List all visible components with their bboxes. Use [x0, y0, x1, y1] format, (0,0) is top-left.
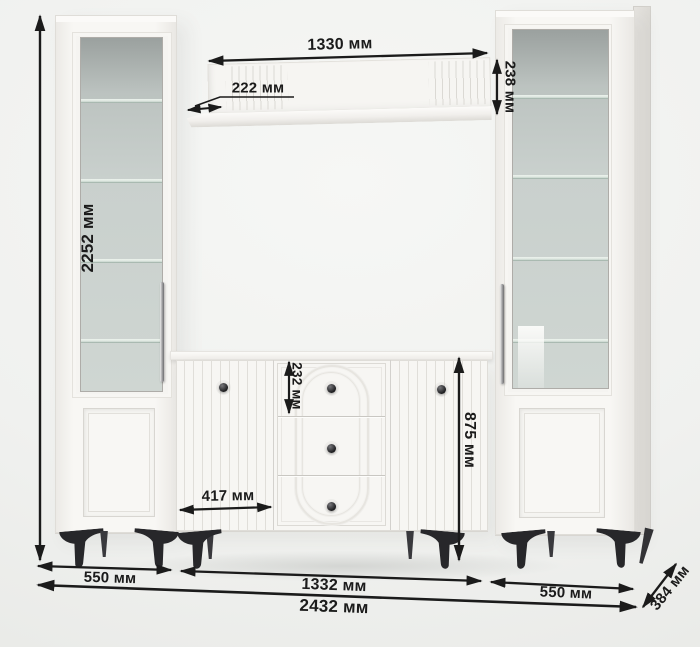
drawer-divider [278, 416, 385, 417]
right-cabinet-side-panel [633, 6, 651, 535]
cabinet-leg [592, 528, 641, 572]
dim-label-stand-height: 875 мм [460, 412, 478, 468]
right-door-handle [500, 284, 504, 384]
shelf-grooves-right [428, 60, 487, 105]
dim-label-stand-door-width: 417 мм [202, 487, 255, 505]
dim-label-total-height: 2252 мм [78, 203, 98, 272]
cabinet-leg [500, 529, 549, 573]
left-display-cabinet [55, 15, 177, 534]
door-knob [219, 383, 228, 392]
stand-leg [176, 529, 225, 573]
drawer-divider [278, 475, 385, 476]
door-knob [437, 385, 446, 394]
tv-stand-top [170, 351, 493, 360]
drawer-knob [327, 384, 336, 393]
dim-label-top-drawer-height: 232 мм [290, 362, 305, 409]
tv-stand [176, 360, 488, 532]
dim-label-shelf-depth: 222 мм [232, 80, 285, 97]
dim-label-stand-width: 1332 мм [301, 576, 367, 596]
dim-label-total-width: 2432 мм [299, 596, 369, 618]
glass-shelf [81, 99, 162, 103]
dim-label-right-cabinet-width: 550 мм [539, 583, 592, 602]
lower-door-panel [83, 408, 155, 517]
cabinet-top-edge [56, 16, 176, 22]
furniture-diagram: 2252 мм 1330 мм 222 мм 238 мм 232 мм 875… [0, 0, 700, 647]
glass-shelf [513, 175, 608, 179]
cabinet-leg [130, 528, 179, 572]
glass-shelf [513, 257, 608, 261]
glass-panel [512, 29, 609, 389]
drawer-knob [327, 444, 336, 453]
glass-shelf [513, 95, 608, 99]
glass-reflection [518, 326, 544, 388]
glass-shelf [81, 179, 162, 183]
drawer-knob [327, 502, 336, 511]
left-door-handle [160, 282, 164, 382]
right-glass-door [504, 24, 612, 396]
glass-shelf [81, 339, 162, 343]
stand-leg [416, 529, 465, 573]
dim-label-left-cabinet-width: 550 мм [83, 569, 136, 587]
dim-label-shelf-width: 1330 мм [307, 35, 373, 55]
lower-door-panel [519, 408, 605, 518]
dim-label-shelf-panel-height: 238 мм [502, 61, 519, 114]
cabinet-top-edge [496, 11, 634, 17]
cabinet-leg [58, 528, 107, 572]
